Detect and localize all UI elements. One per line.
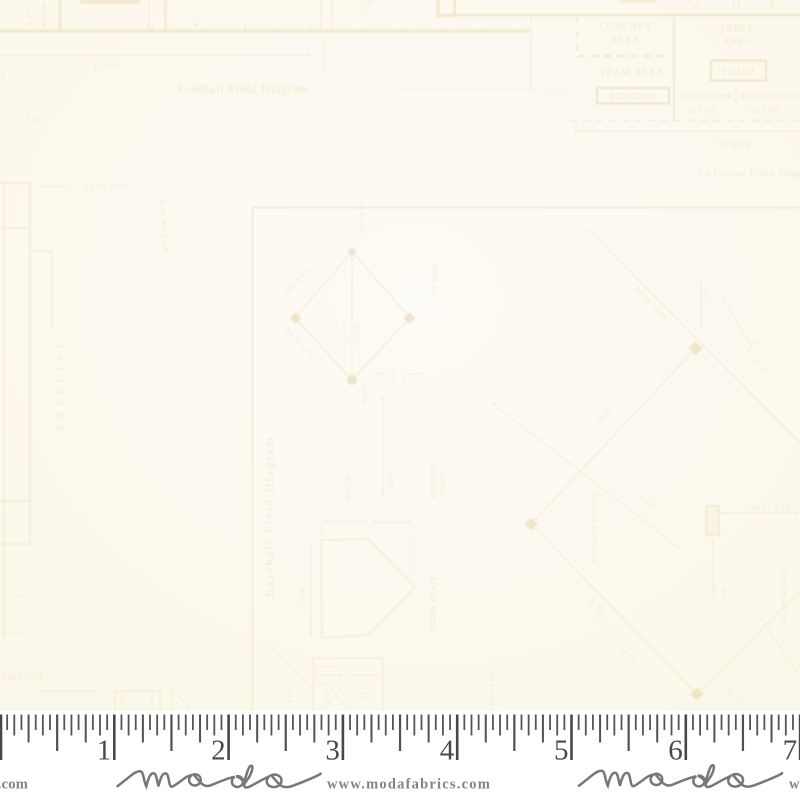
- svg-text:TABLE: TABLE: [719, 24, 754, 35]
- svg-text:8 1/2 IN: 8 1/2 IN: [344, 474, 352, 500]
- svg-text:HOME: HOME: [361, 382, 369, 404]
- svg-text:La Crosse Field Diagr: La Crosse Field Diagr: [698, 169, 800, 180]
- svg-text:17 IN: 17 IN: [300, 587, 308, 605]
- svg-text:5: 5: [554, 735, 569, 767]
- svg-text:1ST BASE LINE: 1ST BASE LINE: [780, 570, 788, 625]
- svg-text:14 FT: 14 FT: [597, 603, 604, 620]
- svg-text:AREA: AREA: [723, 37, 753, 48]
- svg-text:COACH BOX: COACH BOX: [488, 665, 496, 711]
- svg-text:24 FT: 24 FT: [19, 115, 41, 124]
- svg-text:10 YDS: 10 YDS: [750, 105, 780, 115]
- svg-text:4: 4: [440, 735, 455, 767]
- svg-text:7: 7: [783, 735, 798, 767]
- svg-text:AREA: AREA: [610, 35, 640, 46]
- svg-text:4 FT: 4 FT: [25, 8, 34, 26]
- svg-text:3: 3: [325, 735, 340, 767]
- svg-text:COACHES: COACHES: [599, 22, 651, 33]
- svg-text:www.modafabrics.com: www.modafabrics.com: [789, 777, 800, 793]
- svg-text:16 FT: 16 FT: [83, 183, 107, 193]
- svg-text:10 YDS: 10 YDS: [686, 105, 716, 115]
- svg-text:TEAM AREA: TEAM AREA: [600, 68, 665, 79]
- svg-text:END LINE: END LINE: [1, 672, 42, 681]
- svg-text:SE: SE: [0, 71, 7, 80]
- svg-text:1ST BASE: 1ST BASE: [431, 262, 439, 297]
- svg-text:TIMER: TIMER: [721, 68, 756, 78]
- svg-text:www.modafabrics.com: www.modafabrics.com: [327, 777, 490, 793]
- svg-text:15 FT: 15 FT: [704, 288, 711, 305]
- svg-text:HOME PLATE: HOME PLATE: [429, 574, 438, 631]
- svg-text:3 FT: 3 FT: [711, 583, 719, 598]
- svg-text:2: 2: [211, 735, 226, 767]
- svg-text:46 FT: 46 FT: [387, 469, 396, 490]
- svg-text:3 3/8 IN: 3 3/8 IN: [353, 323, 361, 349]
- svg-text:127 FT: 127 FT: [341, 321, 350, 345]
- svg-text:4 IN: 4 IN: [722, 587, 729, 600]
- svg-text:6 IN: 6 IN: [287, 689, 295, 703]
- svg-text:60 FT 6 IN: 60 FT 6 IN: [751, 504, 791, 513]
- svg-text:160 FT: 160 FT: [93, 62, 120, 71]
- svg-text:50 YDS: 50 YDS: [717, 140, 751, 150]
- svg-text:PITCHER: PITCHER: [430, 463, 438, 498]
- svg-text:Baseball Field Diagram: Baseball Field Diagram: [264, 437, 276, 597]
- svg-text:6: 6: [668, 735, 683, 767]
- svg-text:Football Field Diagram: Football Field Diagram: [177, 82, 310, 96]
- svg-text:6 IN: 6 IN: [402, 373, 409, 386]
- svg-text:2ND BASE: 2ND BASE: [359, 198, 366, 234]
- svg-text:www.modafabrics.com: www.modafabrics.com: [0, 777, 28, 793]
- svg-text:PITCHERS MOUND: PITCHERS MOUND: [591, 493, 599, 563]
- svg-text:3 FT: 3 FT: [360, 685, 368, 700]
- svg-text:46 FT: 46 FT: [391, 368, 398, 386]
- svg-text:PLATE: PLATE: [439, 469, 447, 494]
- svg-text:1: 1: [97, 735, 112, 767]
- svg-text:BENCHES: BENCHES: [610, 92, 657, 102]
